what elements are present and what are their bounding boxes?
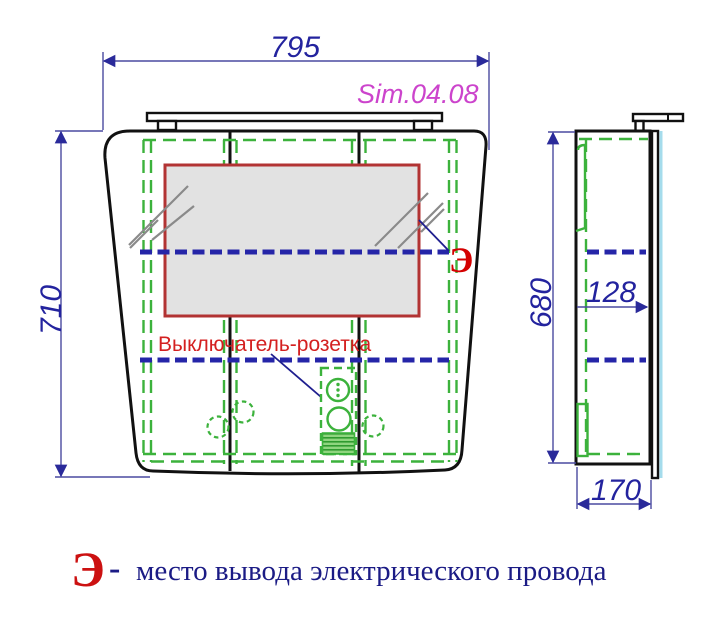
side-door-panel — [652, 131, 658, 478]
switch-circle — [328, 408, 351, 431]
model-label: Sim.04.08 — [357, 79, 479, 109]
light-fixture-side — [633, 114, 683, 131]
vent-grille — [323, 433, 355, 454]
dim-depth: 170 — [577, 467, 651, 509]
dim-carcass-height: 680 — [525, 132, 576, 463]
technical-drawing-canvas: Э Выключатель-розетка — [0, 0, 720, 624]
switch-socket-unit — [321, 368, 356, 454]
electric-marker: Э — [449, 240, 473, 280]
dim-depth-value: 170 — [591, 474, 641, 507]
switch-socket-leader — [271, 354, 321, 397]
dim-shelf-offset-value: 128 — [586, 276, 636, 309]
front-view: Э Выключатель-розетка — [105, 113, 486, 474]
dim-carcass-height-value: 680 — [525, 278, 558, 328]
legend-description: место вывода электрического провода — [136, 555, 607, 587]
electric-marker-leader — [419, 220, 449, 251]
legend-separator: - — [109, 550, 120, 587]
dim-shelf-offset: 128 — [577, 276, 647, 309]
dim-height-value: 710 — [35, 285, 68, 335]
switch-socket-label: Выключатель-розетка — [158, 333, 372, 356]
legend: Э - место вывода электрического провода — [71, 541, 607, 597]
mirror-cabinet-drawing: Э Выключатель-розетка — [0, 0, 720, 624]
light-fixture-front — [147, 113, 442, 130]
dim-width-value: 795 — [270, 31, 320, 64]
legend-marker: Э — [71, 541, 105, 597]
